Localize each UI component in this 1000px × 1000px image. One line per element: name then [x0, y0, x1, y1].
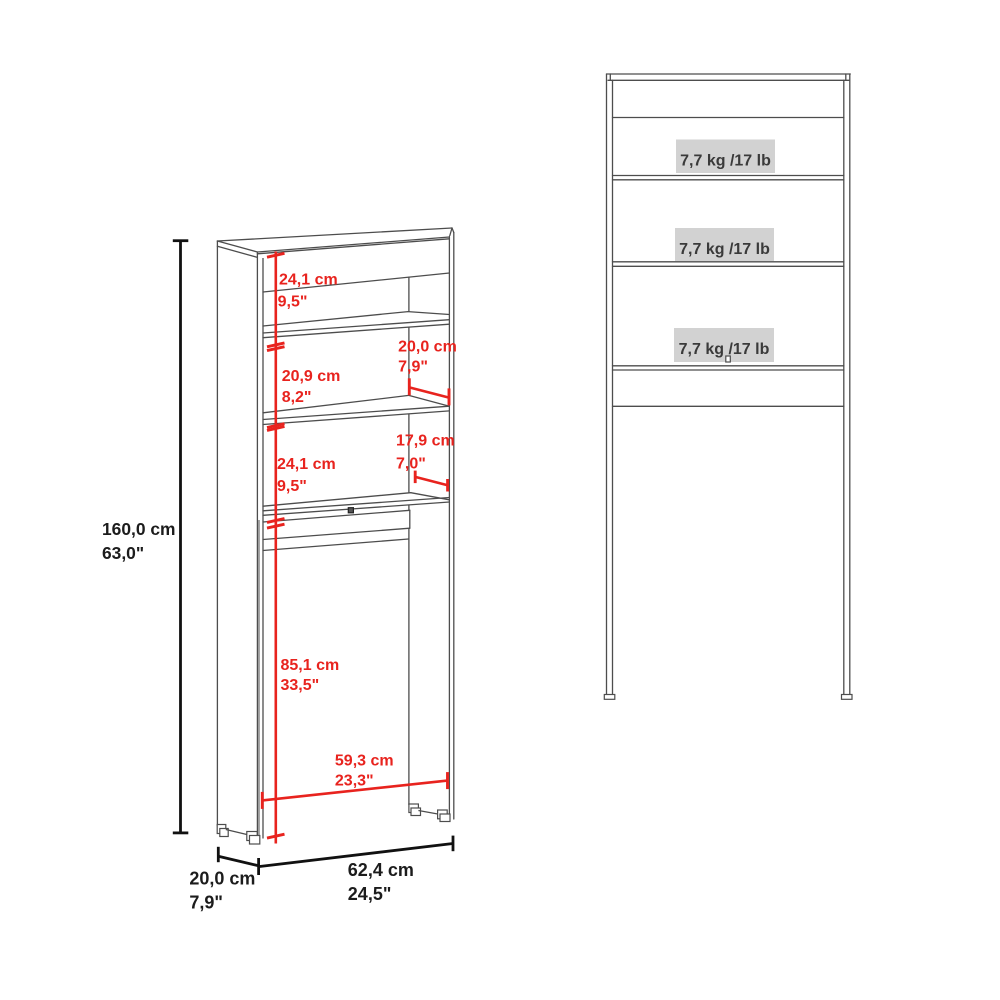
svg-text:59,3 cm: 59,3 cm	[335, 753, 394, 770]
svg-text:17,9 cm: 17,9 cm	[396, 432, 455, 449]
svg-text:24,1 cm: 24,1 cm	[279, 272, 338, 289]
svg-text:20,9 cm: 20,9 cm	[282, 368, 341, 385]
svg-text:7,9": 7,9"	[398, 358, 428, 375]
svg-text:24,5": 24,5"	[348, 884, 392, 904]
svg-text:7,9": 7,9"	[189, 893, 223, 913]
svg-text:62,4 cm: 62,4 cm	[348, 860, 414, 880]
svg-text:85,1 cm: 85,1 cm	[281, 657, 340, 674]
svg-text:7,7 kg /17 lb: 7,7 kg /17 lb	[679, 241, 770, 258]
svg-text:23,3": 23,3"	[335, 773, 374, 790]
svg-text:33,5": 33,5"	[281, 677, 320, 694]
svg-text:8,2": 8,2"	[282, 389, 312, 406]
svg-text:7,0": 7,0"	[396, 456, 426, 473]
svg-text:9,5": 9,5"	[277, 478, 307, 495]
svg-text:24,1 cm: 24,1 cm	[277, 456, 336, 473]
svg-text:7,7 kg /17 lb: 7,7 kg /17 lb	[680, 153, 771, 170]
svg-text:160,0 cm: 160,0 cm	[102, 519, 176, 539]
svg-text:20,0 cm: 20,0 cm	[189, 869, 255, 889]
svg-text:63,0": 63,0"	[102, 543, 144, 563]
svg-text:7,7 kg /17 lb: 7,7 kg /17 lb	[679, 341, 770, 358]
svg-text:20,0 cm: 20,0 cm	[398, 339, 457, 356]
svg-text:9,5": 9,5"	[278, 294, 308, 311]
